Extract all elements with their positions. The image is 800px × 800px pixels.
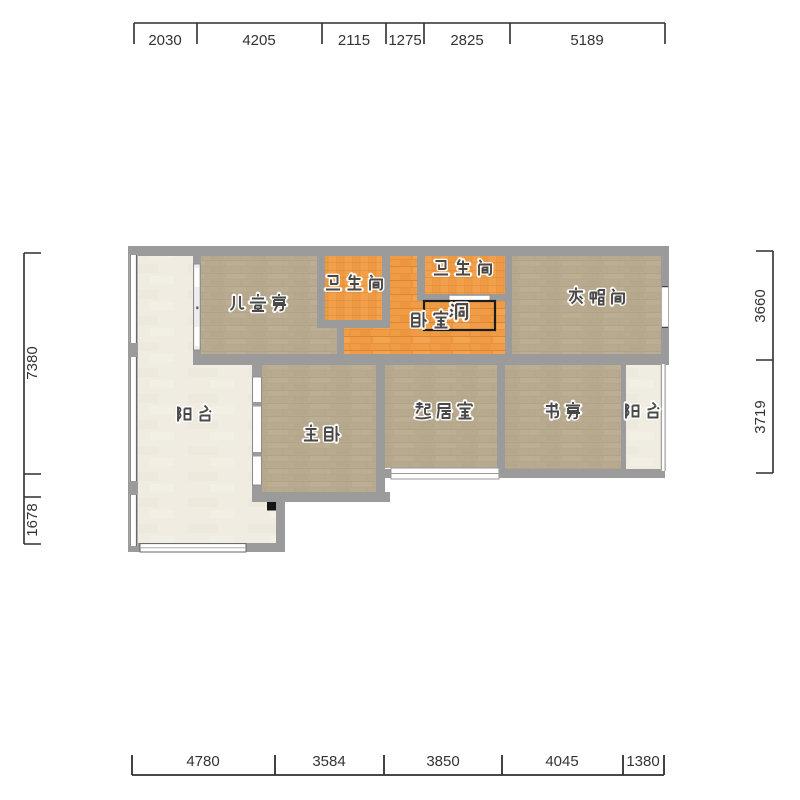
- svg-text:1380: 1380: [626, 753, 659, 770]
- svg-text:3719: 3719: [752, 400, 769, 433]
- svg-text:4205: 4205: [242, 32, 275, 49]
- svg-text:1678: 1678: [24, 503, 41, 536]
- svg-text:4045: 4045: [545, 753, 578, 770]
- svg-text:7380: 7380: [24, 346, 41, 379]
- svg-text:5189: 5189: [570, 32, 603, 49]
- svg-text:1275: 1275: [388, 32, 421, 49]
- svg-text:3850: 3850: [426, 753, 459, 770]
- svg-text:2030: 2030: [148, 32, 181, 49]
- svg-text:4780: 4780: [186, 753, 219, 770]
- svg-text:2115: 2115: [338, 32, 370, 49]
- svg-text:3584: 3584: [312, 753, 345, 770]
- svg-text:2825: 2825: [450, 32, 483, 49]
- svg-text:3660: 3660: [752, 289, 769, 322]
